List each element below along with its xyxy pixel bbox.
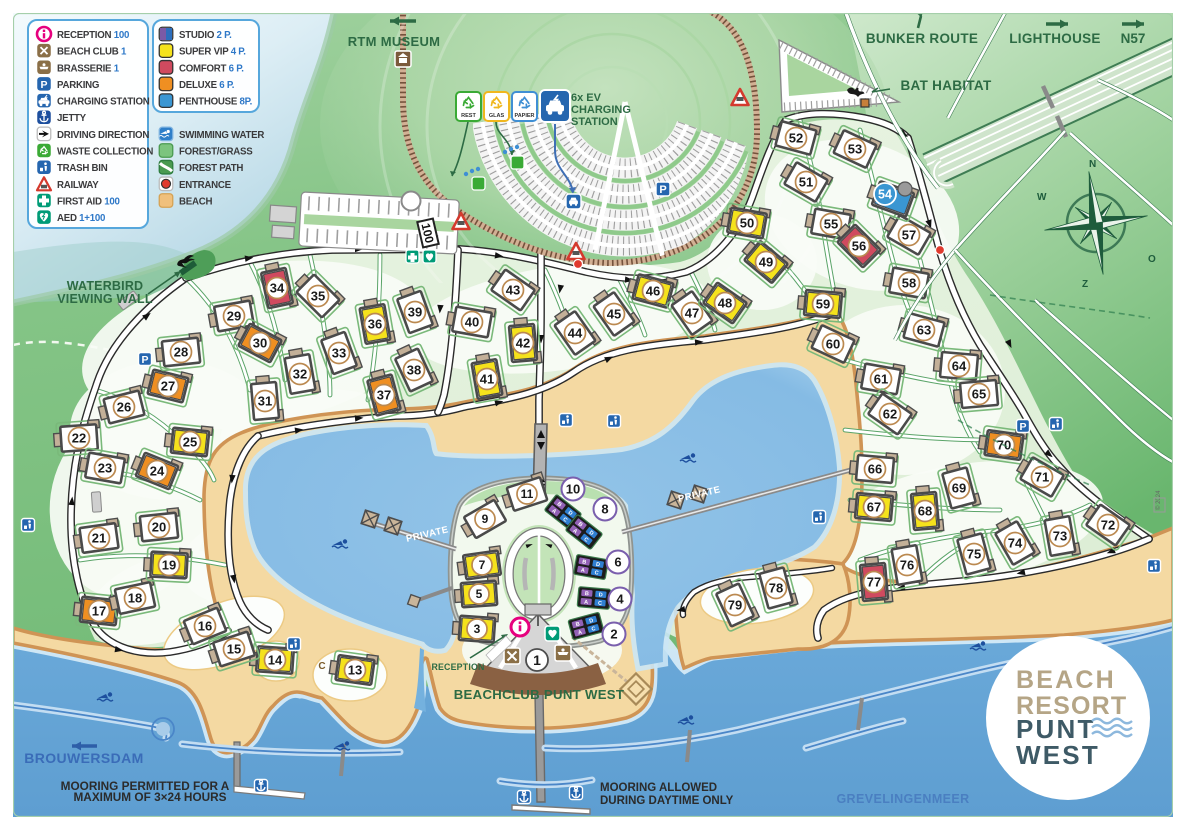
svg-text:34: 34: [270, 280, 285, 295]
svg-text:78: 78: [769, 580, 783, 595]
svg-text:C: C: [598, 601, 603, 607]
svg-text:3: 3: [474, 622, 481, 636]
svg-text:79: 79: [728, 597, 742, 612]
svg-text:COMFORT 6 P.: COMFORT 6 P.: [179, 63, 244, 74]
svg-text:TRASH BIN: TRASH BIN: [57, 163, 108, 174]
svg-text:A: A: [584, 599, 589, 605]
svg-text:MAXIMUM OF 3×24 HOURS: MAXIMUM OF 3×24 HOURS: [73, 790, 226, 804]
svg-text:4: 4: [616, 592, 624, 607]
svg-text:46: 46: [646, 283, 660, 298]
svg-text:BEACH CLUB 1: BEACH CLUB 1: [57, 47, 127, 58]
svg-text:BEACH: BEACH: [1016, 666, 1116, 694]
svg-text:48: 48: [718, 295, 732, 310]
svg-text:17: 17: [92, 603, 106, 618]
svg-text:P: P: [141, 354, 148, 366]
svg-text:SWIMMING WATER: SWIMMING WATER: [179, 130, 264, 141]
svg-text:O: O: [1148, 254, 1156, 265]
svg-text:REST: REST: [461, 113, 476, 119]
svg-text:JETTY: JETTY: [57, 113, 87, 124]
svg-text:22: 22: [72, 430, 86, 445]
svg-text:STATION: STATION: [571, 116, 618, 128]
svg-text:16: 16: [198, 618, 212, 633]
svg-text:28: 28: [174, 344, 188, 359]
svg-text:AED 1+100: AED 1+100: [57, 213, 105, 224]
svg-text:68: 68: [918, 503, 932, 518]
svg-text:BROUWERSDAM: BROUWERSDAM: [24, 750, 144, 766]
svg-text:41: 41: [480, 371, 494, 386]
svg-text:N: N: [1089, 159, 1096, 170]
svg-text:FOREST/GRASS: FOREST/GRASS: [179, 147, 253, 158]
svg-text:LIGHTHOUSE: LIGHTHOUSE: [1009, 31, 1101, 46]
svg-text:39: 39: [408, 304, 422, 319]
svg-text:13: 13: [348, 662, 362, 677]
svg-text:6x EV: 6x EV: [571, 92, 602, 104]
svg-text:38: 38: [407, 362, 421, 377]
svg-text:9: 9: [482, 512, 489, 526]
svg-text:73: 73: [1053, 528, 1067, 543]
svg-text:74: 74: [1008, 535, 1023, 550]
svg-text:56: 56: [852, 238, 866, 253]
svg-text:45: 45: [607, 306, 621, 321]
svg-text:37: 37: [377, 387, 391, 402]
svg-text:RAILWAY: RAILWAY: [57, 180, 99, 191]
svg-text:25: 25: [183, 434, 197, 449]
svg-text:STUDIO 2 P.: STUDIO 2 P.: [179, 30, 232, 41]
svg-text:PENTHOUSE 8P.: PENTHOUSE 8P.: [179, 97, 253, 108]
svg-text:WATERBIRD: WATERBIRD: [67, 279, 144, 293]
svg-text:52: 52: [789, 130, 803, 145]
svg-text:2: 2: [610, 627, 617, 642]
svg-text:W: W: [1037, 192, 1047, 203]
svg-text:DELUXE 6 P.: DELUXE 6 P.: [179, 80, 235, 91]
svg-text:57: 57: [902, 227, 916, 242]
svg-text:67: 67: [867, 499, 881, 514]
svg-text:21: 21: [92, 530, 106, 545]
svg-text:BRASSERIE 1: BRASSERIE 1: [57, 63, 120, 74]
svg-text:53: 53: [848, 141, 862, 156]
svg-text:FOREST PATH: FOREST PATH: [179, 163, 243, 174]
svg-text:40: 40: [465, 314, 479, 329]
svg-text:26: 26: [117, 399, 131, 414]
svg-text:SUPER VIP 4 P.: SUPER VIP 4 P.: [179, 47, 246, 58]
svg-text:ENTRANCE: ENTRANCE: [179, 180, 232, 191]
svg-text:B: B: [585, 591, 590, 597]
svg-text:58: 58: [902, 275, 916, 290]
svg-text:55: 55: [824, 216, 838, 231]
svg-text:42: 42: [516, 335, 530, 350]
svg-text:75: 75: [967, 546, 981, 561]
svg-text:64: 64: [952, 358, 967, 373]
svg-text:BUNKER ROUTE: BUNKER ROUTE: [866, 31, 978, 46]
svg-text:44: 44: [568, 325, 583, 340]
svg-text:62: 62: [883, 406, 897, 421]
svg-text:60: 60: [826, 336, 840, 351]
svg-text:20: 20: [152, 519, 166, 534]
svg-text:15: 15: [227, 641, 241, 656]
svg-text:BEACH: BEACH: [179, 197, 212, 208]
svg-text:66: 66: [868, 461, 882, 476]
svg-text:P: P: [1019, 421, 1026, 433]
svg-text:Z: Z: [1082, 279, 1088, 290]
svg-text:PARKING: PARKING: [57, 80, 99, 91]
svg-text:5: 5: [476, 587, 483, 601]
svg-text:RECEPTION 100: RECEPTION 100: [57, 30, 129, 41]
svg-text:BAT HABITAT: BAT HABITAT: [900, 78, 991, 93]
svg-text:49: 49: [759, 254, 773, 269]
svg-text:C: C: [318, 661, 325, 672]
svg-text:1: 1: [533, 652, 541, 668]
svg-text:RTM MUSEUM: RTM MUSEUM: [348, 34, 441, 49]
svg-text:51: 51: [799, 174, 813, 189]
svg-text:P: P: [659, 184, 666, 196]
svg-text:47: 47: [685, 305, 699, 320]
svg-text:MOORING ALLOWED: MOORING ALLOWED: [600, 782, 717, 794]
svg-text:29: 29: [227, 308, 241, 323]
svg-text:GLAS: GLAS: [489, 113, 505, 119]
svg-text:27: 27: [161, 378, 175, 393]
svg-text:CHARGING: CHARGING: [571, 104, 631, 116]
svg-text:61: 61: [874, 371, 888, 386]
svg-text:VIEWING WALL: VIEWING WALL: [57, 292, 153, 306]
svg-text:76: 76: [900, 557, 914, 572]
svg-text:63: 63: [917, 322, 931, 337]
svg-text:14: 14: [268, 652, 283, 667]
svg-text:43: 43: [506, 282, 520, 297]
svg-text:8: 8: [601, 502, 608, 517]
svg-text:65: 65: [972, 386, 986, 401]
svg-text:31: 31: [258, 393, 272, 408]
svg-text:69: 69: [952, 480, 966, 495]
svg-text:DRIVING DIRECTION: DRIVING DIRECTION: [57, 130, 149, 141]
svg-text:7: 7: [479, 558, 486, 572]
svg-text:10: 10: [566, 482, 580, 497]
svg-text:DURING DAYTIME ONLY: DURING DAYTIME ONLY: [600, 795, 734, 807]
svg-text:WASTE COLLECTION: WASTE COLLECTION: [57, 147, 153, 158]
svg-text:77: 77: [867, 574, 881, 589]
svg-text:35: 35: [311, 288, 325, 303]
svg-text:59: 59: [816, 296, 830, 311]
svg-text:P: P: [40, 79, 47, 91]
svg-text:6: 6: [614, 555, 621, 570]
svg-text:50: 50: [740, 215, 754, 230]
svg-text:71: 71: [1035, 469, 1049, 484]
svg-text:BEACHCLUB PUNT WEST: BEACHCLUB PUNT WEST: [454, 687, 625, 702]
svg-text:24: 24: [150, 463, 165, 478]
svg-text:N57: N57: [1121, 31, 1146, 46]
svg-text:CHARGING STATION: CHARGING STATION: [57, 97, 150, 108]
svg-text:54: 54: [878, 188, 892, 202]
svg-text:23: 23: [98, 460, 112, 475]
svg-text:D: D: [599, 592, 604, 598]
svg-text:33: 33: [332, 345, 346, 360]
svg-text:19: 19: [162, 557, 176, 572]
svg-text:32: 32: [293, 366, 307, 381]
svg-text:PAPIER: PAPIER: [514, 113, 534, 119]
svg-text:WEST: WEST: [1016, 740, 1100, 770]
svg-text:18: 18: [128, 590, 142, 605]
svg-text:36: 36: [368, 316, 382, 331]
svg-text:RECEPTION: RECEPTION: [431, 662, 484, 672]
svg-text:30: 30: [253, 335, 267, 350]
svg-text:© 2024: © 2024: [1155, 490, 1162, 510]
svg-text:11: 11: [521, 487, 534, 501]
svg-text:GREVELINGENMEER: GREVELINGENMEER: [836, 792, 969, 806]
svg-text:72: 72: [1101, 517, 1115, 532]
svg-text:FIRST AID 100: FIRST AID 100: [57, 197, 120, 208]
